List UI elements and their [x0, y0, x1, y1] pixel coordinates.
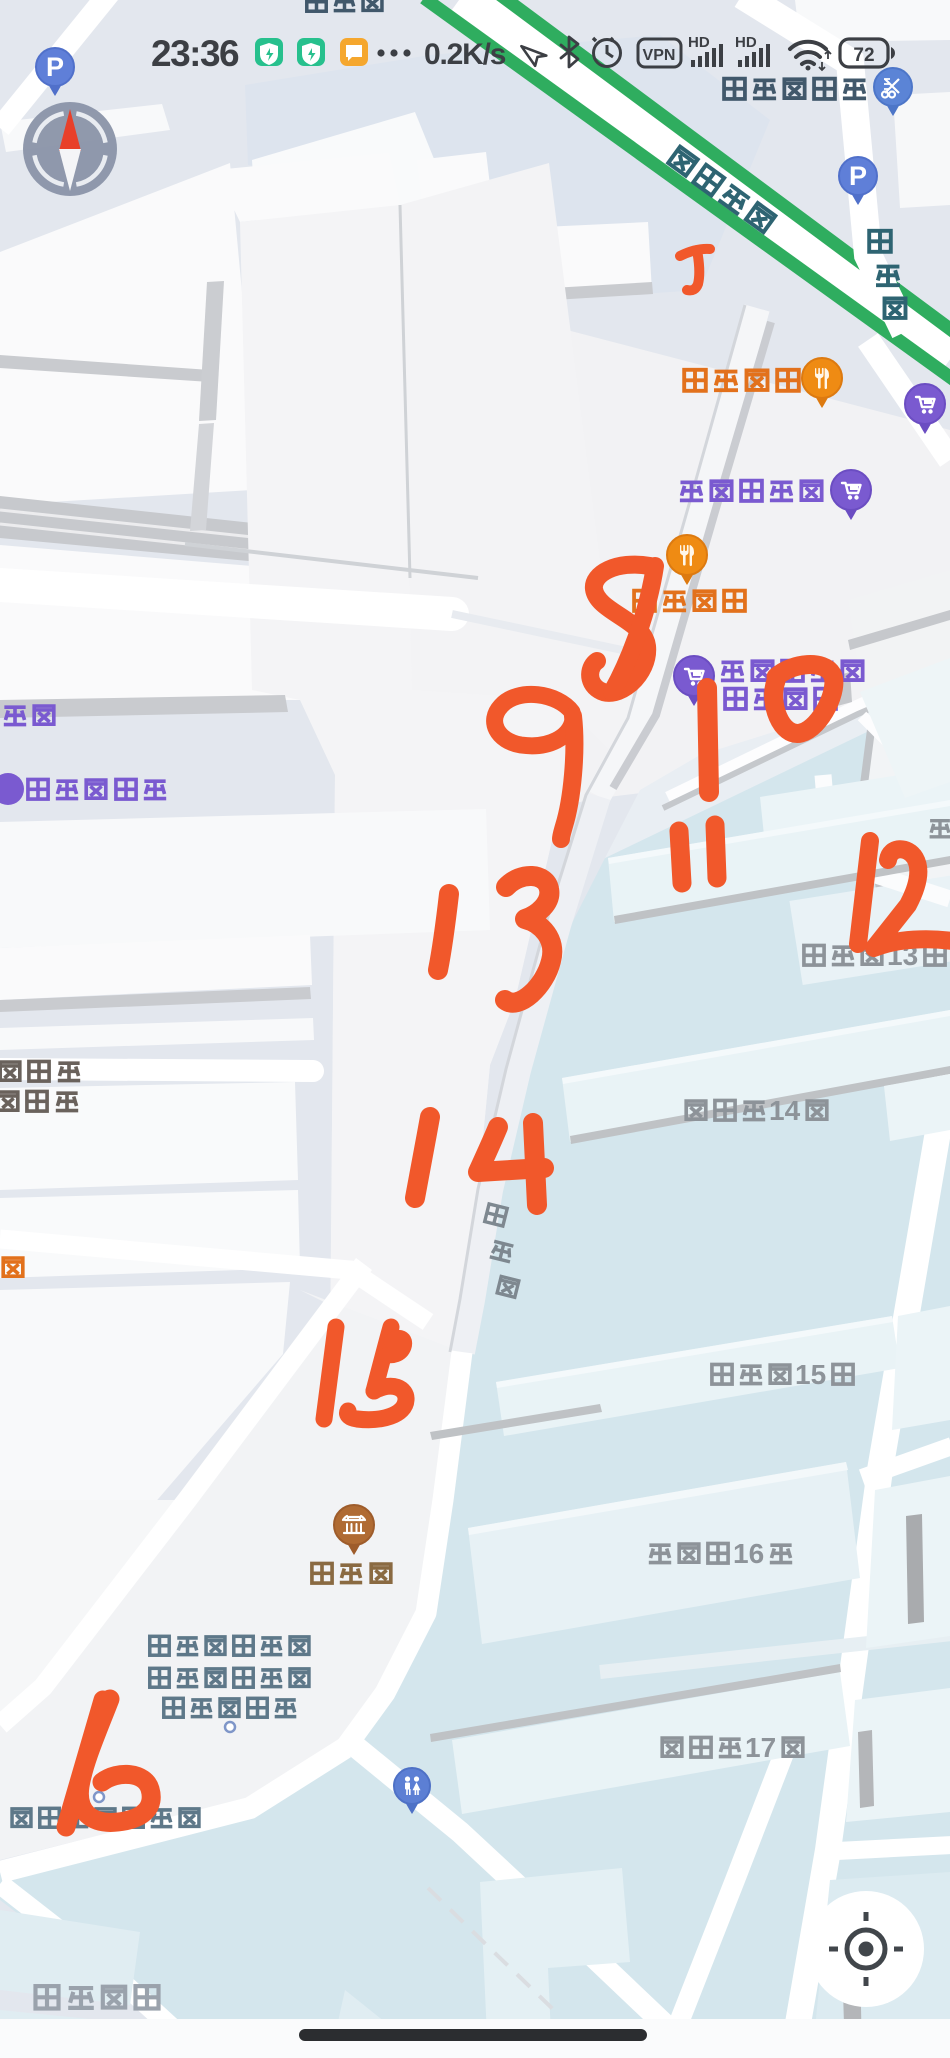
svg-text:72: 72	[853, 45, 874, 66]
svg-text:P: P	[46, 52, 64, 82]
svg-text:VPN: VPN	[643, 47, 676, 64]
svg-text:14: 14	[769, 1095, 801, 1126]
svg-text:P: P	[849, 161, 867, 191]
svg-text:17: 17	[745, 1732, 776, 1763]
svg-text:HD: HD	[688, 34, 710, 51]
svg-text:0.2K/s: 0.2K/s	[424, 38, 506, 71]
svg-text:23:36: 23:36	[151, 33, 239, 74]
svg-text:15: 15	[795, 1359, 826, 1390]
svg-text:16: 16	[733, 1538, 764, 1569]
svg-text:HD: HD	[735, 34, 757, 51]
